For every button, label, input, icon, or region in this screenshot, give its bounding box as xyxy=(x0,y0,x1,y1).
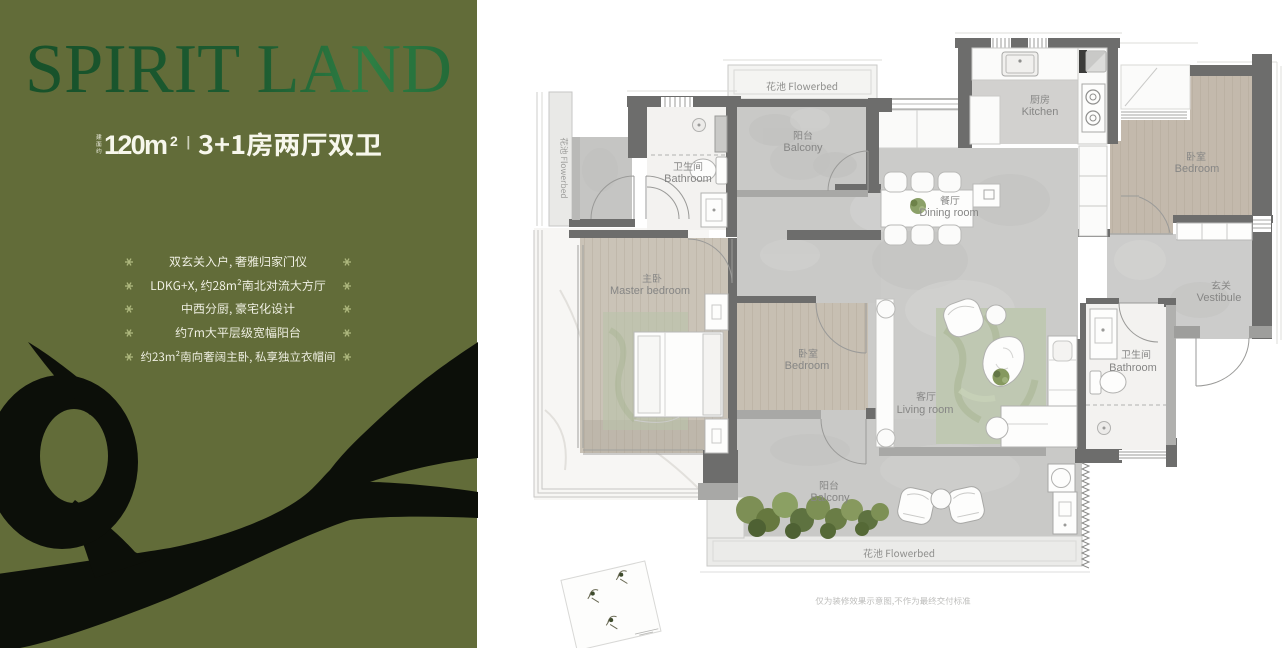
svg-text:Master bedroom: Master bedroom xyxy=(610,285,690,297)
svg-text:Kitchen: Kitchen xyxy=(1022,106,1059,118)
svg-text:Bathroom: Bathroom xyxy=(664,173,712,185)
svg-text:Balcony: Balcony xyxy=(783,142,823,154)
svg-text:SPIRIT LAND: SPIRIT LAND xyxy=(25,31,452,108)
svg-text:Bathroom: Bathroom xyxy=(1109,362,1157,374)
svg-text:2: 2 xyxy=(170,133,178,149)
svg-text:Balcony: Balcony xyxy=(810,492,850,504)
svg-text:Living room: Living room xyxy=(897,404,954,416)
svg-text:Dining room: Dining room xyxy=(919,207,978,219)
svg-text:Vestibule: Vestibule xyxy=(1197,292,1242,304)
svg-text:120m: 120m xyxy=(104,130,168,160)
svg-text:Bedroom: Bedroom xyxy=(785,360,830,372)
svg-text:Bedroom: Bedroom xyxy=(1175,163,1220,175)
